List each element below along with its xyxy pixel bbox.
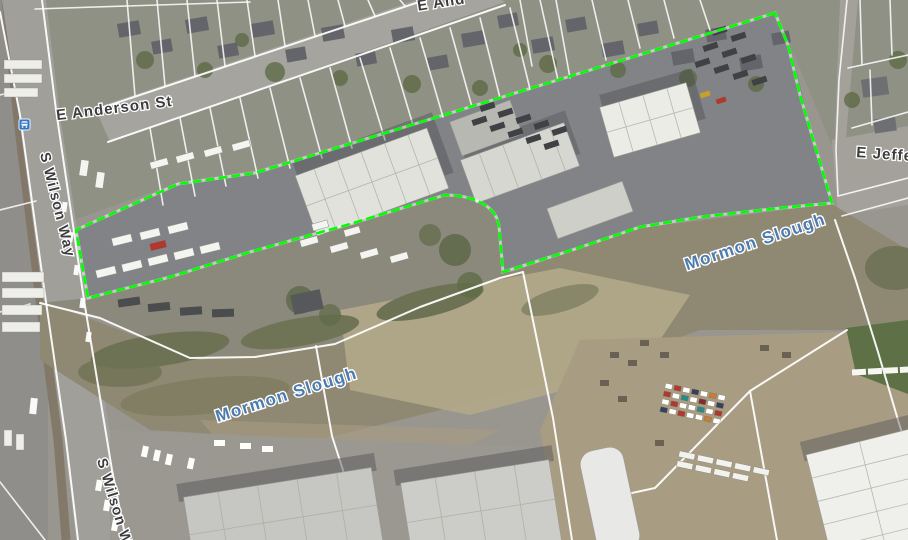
- aerial-imagery-canvas: E And E Anderson St S Wilson Way S Wilso…: [0, 0, 908, 540]
- bus-stop-icon[interactable]: [19, 119, 30, 130]
- terrain-base: [0, 0, 908, 540]
- satellite-map-viewport[interactable]: E And E Anderson St S Wilson Way S Wilso…: [0, 0, 908, 540]
